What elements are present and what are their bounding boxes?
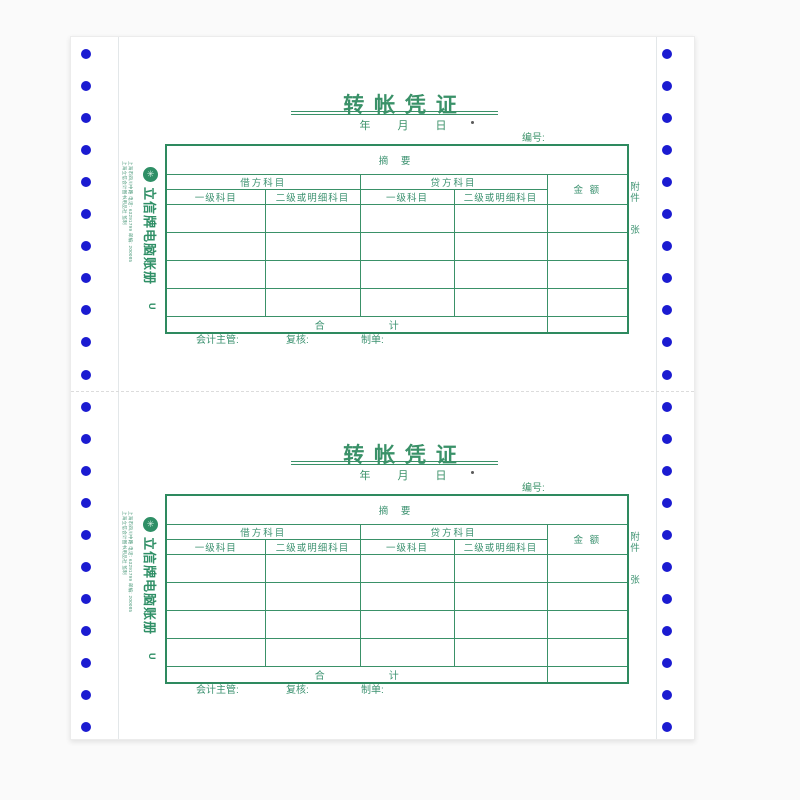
entry-cell [265,582,360,610]
credit-level1-header-cell: 一级科目 [360,539,454,554]
print-dot-mark [471,121,474,124]
credit-header-cell: 贷方科目 [360,524,547,539]
entry-cell [454,582,547,610]
amount-header-cell: 金 额 [547,174,628,204]
entry-cell [265,554,360,582]
total-char-left: 合 [315,317,325,332]
title-double-rule [291,111,498,115]
brand-name-vertical: 立信牌电脑账册 [141,537,160,635]
debit-level2-header-cell: 二级或明细科目 [265,189,360,204]
entry-cell [360,260,454,288]
voucher-table: 摘 要 借方科目 贷方科目 金 额 一级科目 二级或明细科目 一级科目 二级或明… [165,494,629,684]
entry-cell [265,232,360,260]
entry-cell [547,554,628,582]
tractor-hole [81,402,91,412]
entry-cell [454,232,547,260]
total-char-right: 计 [389,667,399,682]
entry-cell [454,260,547,288]
date-line: 年 月 日 [309,467,509,483]
entry-cell [265,288,360,316]
title-double-rule [291,461,498,465]
entry-cell [547,610,628,638]
entry-cell [454,638,547,666]
entry-cell [547,638,628,666]
debit-level1-header-cell: 一级科目 [166,539,265,554]
entry-cell [265,638,360,666]
entry-cell [166,582,265,610]
entry-cell [360,204,454,232]
entry-cell [454,610,547,638]
voucher-form-top: 转 帐 凭 证 年 月 日 编号: ✳ 立信牌电脑账册 U 上海立信会计图书用品… [71,87,696,397]
entry-cell [166,554,265,582]
total-char-left: 合 [315,667,325,682]
entry-cell [166,610,265,638]
tractor-hole [662,49,672,59]
entry-cell [360,554,454,582]
attachment-label: 附件 [629,532,641,554]
summary-header-cell: 摘 要 [166,495,628,524]
date-line: 年 月 日 [309,117,509,133]
attachment-unit-label: 张 [629,225,641,236]
credit-header-cell: 贷方科目 [360,174,547,189]
entry-cell [547,232,628,260]
entry-cell [454,288,547,316]
print-dot-mark [471,471,474,474]
entry-cell [547,288,628,316]
debit-level1-header-cell: 一级科目 [166,189,265,204]
credit-level2-header-cell: 二级或明细科目 [454,539,547,554]
total-char-right: 计 [389,317,399,332]
voucher-number-label: 编号: [522,479,545,494]
voucher-form-bottom: 转 帐 凭 证 年 月 日 编号: ✳ 立信牌电脑账册 U 上海立信会计图书用品… [71,437,696,747]
lixin-logo-icon: ✳ [143,517,158,532]
debit-header-cell: 借方科目 [166,524,360,539]
entry-cell [360,638,454,666]
brand-mark: U [147,303,157,310]
credit-level2-header-cell: 二级或明细科目 [454,189,547,204]
entry-cell [360,582,454,610]
total-amount-cell [547,666,628,683]
attachment-unit-label: 张 [629,575,641,586]
entry-cell [547,260,628,288]
entry-cell [166,232,265,260]
reviewer-sign-label: 复核: [286,331,309,346]
entry-cell [360,232,454,260]
reviewer-sign-label: 复核: [286,681,309,696]
tractor-hole [81,49,91,59]
total-amount-cell [547,316,628,333]
entry-cell [265,204,360,232]
entry-cell [547,582,628,610]
lixin-logo-icon: ✳ [143,167,158,182]
credit-level1-header-cell: 一级科目 [360,189,454,204]
entry-cell [166,204,265,232]
continuous-form-paper: 转 帐 凭 证 年 月 日 编号: ✳ 立信牌电脑账册 U 上海立信会计图书用品… [70,36,695,740]
entry-cell [265,260,360,288]
supervisor-sign-label: 会计主管: [196,331,239,346]
preparer-sign-label: 制单: [361,681,384,696]
entry-cell [360,610,454,638]
debit-header-cell: 借方科目 [166,174,360,189]
brand-name-vertical: 立信牌电脑账册 [141,187,160,285]
entry-cell [547,204,628,232]
preparer-sign-label: 制单: [361,331,384,346]
amount-header-cell: 金 额 [547,524,628,554]
entry-cell [265,610,360,638]
entry-cell [166,260,265,288]
publisher-line-2: 上海市四川中路 电话: 63291799 邮编: 200085 [127,161,133,262]
entry-cell [166,288,265,316]
publisher-line-2: 上海市四川中路 电话: 63291799 邮编: 200085 [127,511,133,612]
tractor-hole [662,402,672,412]
entry-cell [360,288,454,316]
entry-cell [454,204,547,232]
summary-header-cell: 摘 要 [166,145,628,174]
entry-cell [454,554,547,582]
voucher-number-label: 编号: [522,129,545,144]
brand-mark: U [147,653,157,660]
voucher-table: 摘 要 借方科目 贷方科目 金 额 一级科目 二级或明细科目 一级科目 二级或明… [165,144,629,334]
entry-cell [166,638,265,666]
attachment-label: 附件 [629,182,641,204]
debit-level2-header-cell: 二级或明细科目 [265,539,360,554]
supervisor-sign-label: 会计主管: [196,681,239,696]
